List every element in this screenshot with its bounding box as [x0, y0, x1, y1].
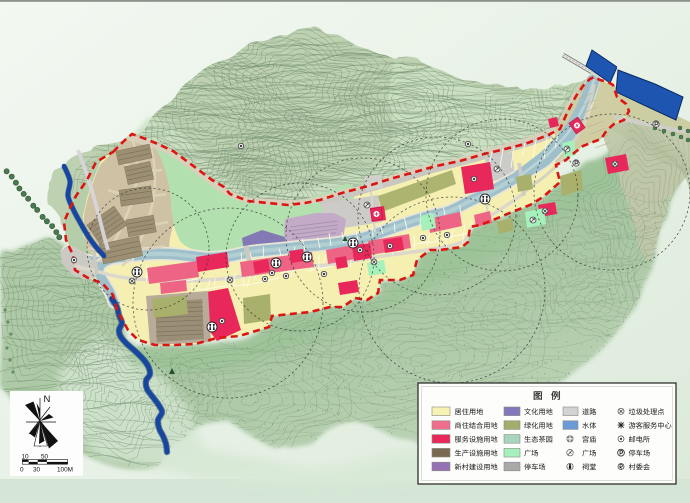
svg-text:50: 50 [41, 453, 49, 460]
svg-text:30: 30 [33, 467, 41, 474]
svg-text:0: 0 [20, 467, 24, 474]
svg-text:N: N [44, 394, 51, 405]
svg-text:100M: 100M [57, 467, 73, 474]
svg-text:10: 10 [22, 453, 30, 460]
